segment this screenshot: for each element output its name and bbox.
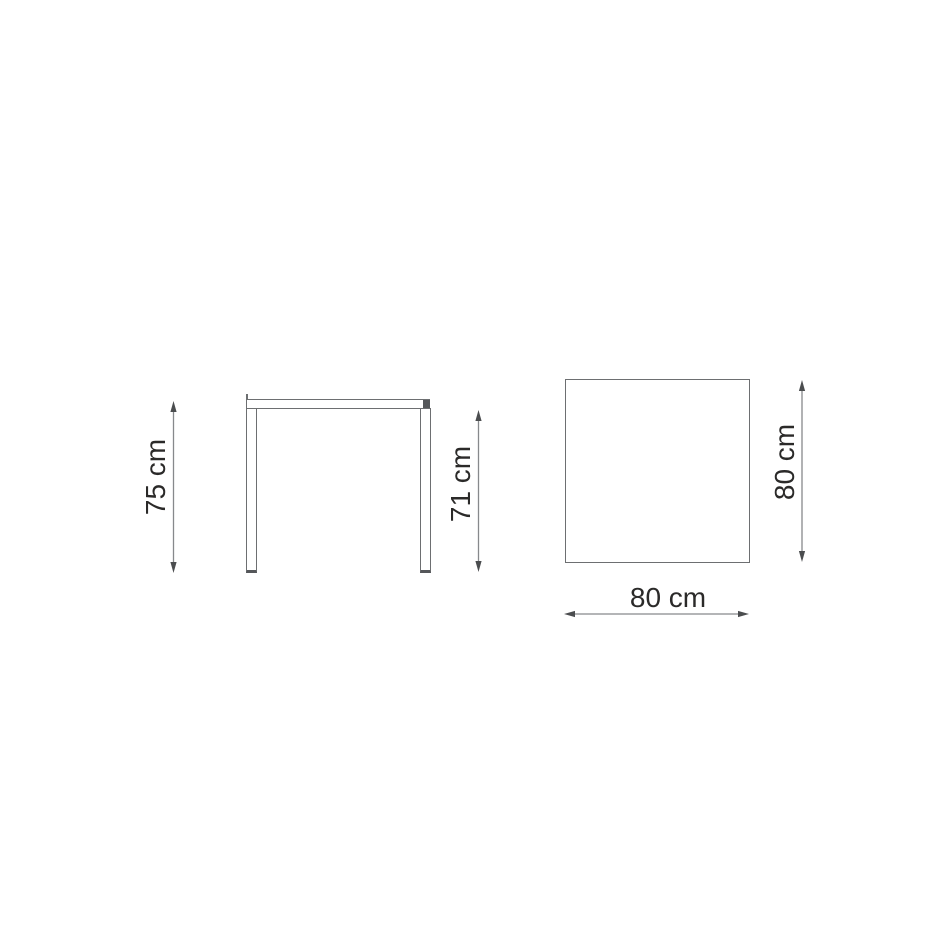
tabletop-top-view	[565, 379, 750, 563]
tabletop-end-tick-left	[246, 394, 248, 400]
arrowhead-down-icon	[170, 562, 176, 573]
arrowhead-up-icon	[799, 380, 805, 391]
arrowhead-up-icon	[475, 410, 481, 421]
dimension-label-overall-height: 75 cm	[139, 417, 173, 537]
tabletop-front	[246, 399, 430, 409]
dimension-label-width: 80 cm	[608, 581, 728, 615]
dimension-label-depth: 80 cm	[768, 402, 802, 522]
tabletop-end-cap-right	[423, 400, 430, 408]
arrowhead-down-icon	[799, 551, 805, 562]
table-leg-right	[420, 408, 431, 573]
arrowhead-right-icon	[738, 611, 749, 617]
dimension-diagram: 75 cm 71 cm 80 cm 80 cm	[0, 0, 950, 950]
arrowhead-down-icon	[475, 561, 481, 572]
table-leg-left	[246, 408, 257, 573]
dimension-label-underside-height: 71 cm	[444, 424, 478, 544]
arrowhead-left-icon	[564, 611, 575, 617]
arrowhead-up-icon	[170, 401, 176, 412]
